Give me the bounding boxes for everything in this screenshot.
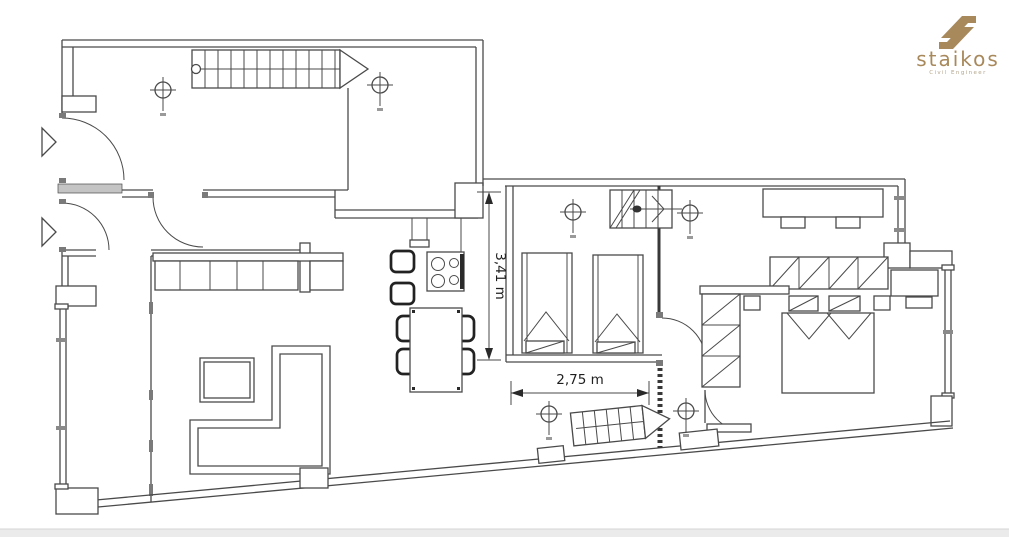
- nightstand: [874, 296, 890, 310]
- desk-right-unit: [891, 270, 938, 296]
- door-jamb: [656, 360, 663, 366]
- dimension-arrow: [511, 389, 523, 397]
- stair-arrow-icon: [340, 50, 368, 88]
- footer-strip: [0, 529, 1009, 537]
- desk-chair: [781, 217, 805, 228]
- nightstand: [744, 296, 760, 310]
- window-mark: [894, 196, 906, 200]
- light-label-mark: [570, 235, 576, 238]
- terrace-unit: [537, 446, 564, 464]
- desk: [763, 189, 883, 217]
- brand-tagline: Civil Engineer: [929, 70, 987, 76]
- dimension-horizontal: 2,75 m: [511, 372, 649, 405]
- dimension-label: 2,75 m: [556, 372, 604, 388]
- window-mark: [56, 426, 67, 430]
- stair-start-dot: [633, 206, 642, 213]
- bar-chair: [391, 283, 414, 304]
- bedroom2-door-arc: [662, 318, 706, 362]
- single-bed-2: [593, 255, 643, 353]
- table-corner: [457, 387, 460, 390]
- wall-tick: [149, 440, 153, 452]
- door-jamb: [656, 312, 663, 318]
- light-label-mark: [687, 236, 693, 239]
- wall-band: [58, 184, 122, 193]
- window-cap: [55, 304, 68, 309]
- bar-chair: [391, 251, 414, 272]
- door-jamb: [148, 192, 154, 198]
- window-cap: [55, 484, 68, 489]
- kitchen-wall-stub: [300, 243, 310, 292]
- door-jamb: [59, 199, 66, 204]
- wardrobe-side-bar: [700, 286, 789, 294]
- living-room: [153, 253, 343, 488]
- sideboard-right: [310, 261, 343, 290]
- door-jamb: [59, 113, 66, 118]
- window-left: [60, 308, 66, 486]
- light-cross: [677, 200, 703, 234]
- table-corner: [457, 310, 460, 313]
- light-label-mark: [546, 437, 552, 440]
- door-jamb: [59, 178, 66, 183]
- light-cross: [536, 401, 562, 435]
- door-jamb: [202, 192, 208, 198]
- balcony-planter: [300, 468, 328, 488]
- wall-right-upper: [898, 179, 905, 243]
- wall-bedroom1-bottom: [506, 355, 662, 362]
- coffee-table: [200, 358, 254, 402]
- footer-bar: [0, 529, 1009, 537]
- light-cross: [150, 77, 176, 111]
- light-label-mark: [683, 434, 689, 437]
- light-cross: [673, 398, 699, 432]
- logo: staikos Civil Engineer: [916, 16, 1000, 76]
- staircase-small: [610, 190, 682, 228]
- window-mark: [894, 228, 906, 232]
- floorplan-drawing: 3,41 m 2,75 m staikos Civil Engineer: [0, 0, 1009, 537]
- table-corner: [412, 387, 415, 390]
- entrance-marker-icon: [42, 128, 56, 156]
- floorplan-page: 3,41 m 2,75 m staikos Civil Engineer: [0, 0, 1009, 537]
- wall-tick: [149, 390, 153, 400]
- table-corner: [412, 310, 415, 313]
- single-bed-1: [522, 253, 572, 353]
- entrance-marker-icon: [42, 218, 56, 246]
- dimension-arrow: [485, 192, 493, 204]
- brand-name: staikos: [916, 47, 1000, 71]
- bedroom2: [700, 189, 938, 393]
- light-cross: [367, 72, 393, 106]
- staircase-terrace: [570, 403, 671, 446]
- wall-step-left: [56, 286, 96, 306]
- wall-step-top-left: [62, 96, 96, 112]
- vestibule-door-arc: [153, 197, 203, 247]
- door-jamb: [59, 247, 66, 252]
- dining-set: [397, 308, 474, 392]
- terrace-unit: [679, 429, 719, 450]
- light-label-mark: [160, 113, 166, 116]
- ceiling-light-icon: [536, 401, 562, 440]
- column-bottom-left: [56, 488, 98, 514]
- dimension-label: 3,41 m: [492, 252, 508, 300]
- ceiling-light-icon: [560, 199, 586, 238]
- window-cap: [942, 265, 954, 270]
- stair-arrow-icon: [642, 403, 671, 439]
- light-cross: [560, 199, 586, 233]
- dimension-arrow: [637, 389, 649, 397]
- ceiling-light-icon: [677, 200, 703, 239]
- desk-chair: [836, 217, 860, 228]
- wall-hall-top: [122, 190, 478, 218]
- ceiling-light-icon: [367, 72, 393, 111]
- dining-table: [410, 308, 462, 392]
- staircase-main: [192, 50, 369, 88]
- bedroom1: [522, 253, 643, 353]
- wall-leftblock-right: [476, 40, 483, 186]
- stove-edge: [460, 254, 464, 289]
- dimension-arrow: [485, 348, 493, 360]
- wall-tick: [149, 302, 153, 314]
- entry-door-arc-1: [62, 118, 124, 180]
- window-mark: [943, 330, 953, 334]
- entry-door-arc-2: [62, 203, 109, 250]
- ceiling-light-icon: [150, 77, 176, 116]
- stair-start-circle: [192, 65, 201, 74]
- kitchen: [391, 218, 464, 304]
- wall-junction-block: [455, 183, 483, 218]
- sideboard: [155, 261, 298, 290]
- window-mark: [56, 338, 67, 342]
- desk-right-chair: [906, 297, 932, 308]
- light-label-mark: [377, 108, 383, 111]
- sink: [410, 240, 429, 247]
- blanket-fold: [787, 313, 871, 339]
- sideboard-top: [153, 253, 343, 261]
- wall-rightblock-top: [483, 179, 905, 186]
